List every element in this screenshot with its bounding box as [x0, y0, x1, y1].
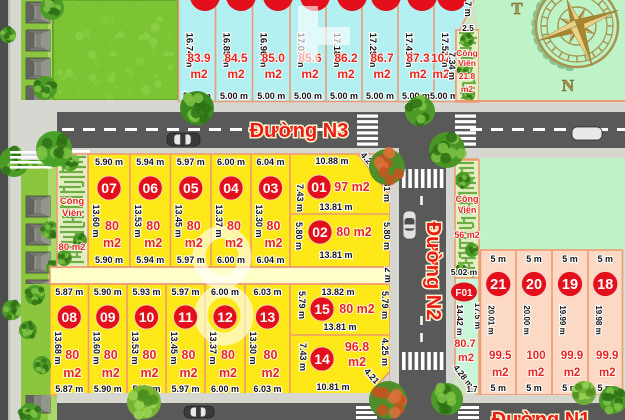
- svg-text:11: 11: [178, 309, 193, 325]
- svg-text:m2: m2: [564, 367, 581, 379]
- svg-text:08: 08: [61, 309, 77, 325]
- svg-text:86.2: 86.2: [334, 51, 358, 65]
- svg-text:m2: m2: [103, 236, 121, 250]
- svg-text:5.94 m: 5.94 m: [136, 157, 164, 167]
- svg-text:01: 01: [311, 179, 327, 195]
- svg-text:13.60 m: 13.60 m: [91, 204, 101, 237]
- svg-text:80: 80: [105, 219, 119, 233]
- svg-text:m2: m2: [179, 366, 197, 380]
- svg-text:5.00 m: 5.00 m: [330, 91, 358, 101]
- svg-text:10: 10: [139, 309, 155, 325]
- svg-text:12: 12: [217, 309, 233, 325]
- svg-text:m2: m2: [261, 366, 279, 380]
- svg-text:99.5: 99.5: [489, 350, 512, 362]
- svg-text:5.79 m: 5.79 m: [297, 291, 307, 319]
- svg-text:80 m2: 80 m2: [59, 242, 86, 253]
- svg-text:m2: m2: [599, 367, 616, 379]
- svg-text:13.81 m: 13.81 m: [319, 250, 352, 260]
- svg-text:m2: m2: [461, 84, 474, 94]
- svg-text:m2: m2: [102, 366, 120, 380]
- svg-text:13.30 m: 13.30 m: [248, 331, 258, 364]
- svg-text:Viên: Viên: [458, 58, 476, 68]
- svg-text:5.00 m: 5.00 m: [257, 91, 285, 101]
- svg-text:09: 09: [100, 309, 116, 325]
- svg-text:m2: m2: [492, 367, 509, 379]
- svg-text:N: N: [562, 76, 575, 95]
- svg-text:F01: F01: [455, 288, 473, 299]
- svg-text:87.3: 87.3: [406, 51, 430, 65]
- svg-text:80: 80: [146, 219, 160, 233]
- svg-text:10.81 m: 10.81 m: [316, 382, 349, 392]
- svg-text:19.99 m: 19.99 m: [558, 305, 567, 334]
- svg-text:13.68 m: 13.68 m: [53, 331, 63, 364]
- svg-text:2.5: 2.5: [462, 23, 474, 33]
- svg-text:80: 80: [104, 348, 118, 362]
- svg-text:80 m2: 80 m2: [339, 302, 374, 316]
- svg-text:97 m2: 97 m2: [334, 180, 369, 194]
- svg-text:6.00 m: 6.00 m: [211, 287, 239, 297]
- svg-text:m2: m2: [373, 67, 391, 81]
- svg-text:20.01 m: 20.01 m: [487, 305, 496, 334]
- svg-text:13.30 m: 13.30 m: [254, 204, 264, 237]
- svg-text:5.87 m: 5.87 m: [55, 287, 83, 297]
- svg-text:5 m: 5 m: [597, 254, 613, 264]
- svg-text:m2: m2: [348, 355, 366, 369]
- svg-text:96.8: 96.8: [345, 340, 369, 354]
- svg-text:03: 03: [263, 180, 279, 196]
- svg-text:m2: m2: [227, 67, 245, 81]
- svg-text:5.97 m: 5.97 m: [177, 157, 205, 167]
- svg-text:7.43 m: 7.43 m: [298, 343, 308, 371]
- svg-text:5.93 m: 5.93 m: [132, 287, 160, 297]
- svg-text:80: 80: [227, 219, 241, 233]
- svg-text:m2: m2: [265, 67, 283, 81]
- svg-text:5.90 m: 5.90 m: [94, 287, 122, 297]
- svg-text:84.5: 84.5: [224, 51, 248, 65]
- svg-text:Đường N2: Đường N2: [422, 222, 444, 321]
- svg-text:13.81 m: 13.81 m: [319, 202, 352, 212]
- svg-text:19.98 m: 19.98 m: [594, 305, 603, 334]
- svg-text:5.90 m: 5.90 m: [95, 157, 123, 167]
- svg-text:T: T: [511, 0, 523, 18]
- svg-text:5 m: 5 m: [562, 254, 578, 264]
- svg-text:5.00 m: 5.00 m: [366, 91, 394, 101]
- svg-text:Công: Công: [60, 196, 84, 207]
- svg-text:13.45 m: 13.45 m: [174, 204, 184, 237]
- svg-text:7.43 m: 7.43 m: [295, 184, 305, 212]
- svg-text:20: 20: [526, 277, 542, 293]
- svg-text:80: 80: [221, 348, 235, 362]
- svg-text:19: 19: [562, 277, 578, 293]
- svg-text:13.53 m: 13.53 m: [130, 331, 140, 364]
- svg-text:80: 80: [143, 348, 157, 362]
- svg-text:18: 18: [597, 277, 613, 293]
- svg-text:m2: m2: [140, 366, 158, 380]
- svg-text:7 m: 7 m: [463, 1, 473, 17]
- svg-text:5.90 m: 5.90 m: [94, 384, 122, 394]
- svg-text:80: 80: [182, 348, 196, 362]
- svg-text:21: 21: [490, 277, 506, 293]
- svg-text:04: 04: [223, 180, 239, 196]
- svg-text:21.8: 21.8: [459, 71, 476, 81]
- svg-text:6.04 m: 6.04 m: [256, 157, 284, 167]
- svg-text:m2: m2: [144, 236, 162, 250]
- svg-text:m2: m2: [264, 236, 282, 250]
- svg-text:80: 80: [267, 219, 281, 233]
- svg-text:5.02 m: 5.02 m: [451, 267, 478, 277]
- svg-text:20.00 m: 20.00 m: [522, 305, 531, 334]
- svg-text:5.00 m: 5.00 m: [294, 91, 322, 101]
- svg-text:m2: m2: [225, 236, 243, 250]
- svg-text:6.03 m: 6.03 m: [253, 287, 281, 297]
- svg-text:99.9: 99.9: [596, 350, 618, 362]
- svg-text:02: 02: [312, 224, 328, 240]
- svg-text:m2: m2: [409, 67, 427, 81]
- svg-text:07: 07: [101, 180, 117, 196]
- svg-text:6.04 m: 6.04 m: [256, 255, 284, 265]
- svg-text:5.80 m: 5.80 m: [294, 222, 304, 250]
- svg-text:m2: m2: [185, 236, 203, 250]
- svg-text:99.9: 99.9: [561, 350, 583, 362]
- svg-text:85.0: 85.0: [262, 51, 286, 65]
- svg-text:100: 100: [526, 350, 545, 362]
- svg-text:56 m2: 56 m2: [454, 230, 480, 240]
- svg-text:5.00 m: 5.00 m: [430, 91, 458, 101]
- svg-text:m2: m2: [337, 67, 355, 81]
- svg-text:5 m: 5 m: [490, 254, 506, 264]
- svg-text:6.03 m: 6.03 m: [253, 384, 281, 394]
- svg-text:5.00 m: 5.00 m: [220, 91, 248, 101]
- svg-text:Công: Công: [456, 194, 479, 204]
- svg-text:5.97 m: 5.97 m: [177, 255, 205, 265]
- svg-text:Viên: Viên: [62, 208, 82, 219]
- svg-text:06: 06: [142, 180, 158, 196]
- svg-text:05: 05: [183, 180, 199, 196]
- svg-text:5.97 m: 5.97 m: [171, 384, 199, 394]
- svg-text:Đường N1: Đường N1: [492, 409, 591, 420]
- svg-text:m2: m2: [458, 352, 474, 364]
- svg-text:15: 15: [314, 301, 330, 317]
- svg-text:m2: m2: [190, 67, 208, 81]
- svg-text:80: 80: [65, 348, 79, 362]
- svg-text:m2: m2: [63, 366, 81, 380]
- svg-text:14.42 m: 14.42 m: [455, 304, 465, 336]
- svg-text:Viên: Viên: [458, 205, 477, 215]
- svg-text:5.79 m: 5.79 m: [380, 291, 390, 319]
- svg-text:13.45 m: 13.45 m: [169, 331, 179, 364]
- svg-text:80.7: 80.7: [454, 338, 475, 350]
- svg-text:13.82 m: 13.82 m: [321, 287, 354, 297]
- svg-text:13.60 m: 13.60 m: [92, 331, 102, 364]
- svg-text:6.00 m: 6.00 m: [217, 157, 245, 167]
- svg-text:5 m: 5 m: [526, 254, 542, 264]
- svg-text:14: 14: [314, 351, 330, 367]
- svg-text:4.25 m: 4.25 m: [380, 338, 390, 366]
- svg-text:5.90 m: 5.90 m: [95, 255, 123, 265]
- svg-text:13: 13: [260, 309, 276, 325]
- svg-text:6.00 m: 6.00 m: [211, 384, 239, 394]
- svg-text:5 m: 5 m: [526, 383, 542, 393]
- svg-text:Đường N3: Đường N3: [250, 120, 349, 142]
- svg-text:5.97 m: 5.97 m: [171, 287, 199, 297]
- svg-text:m2: m2: [219, 366, 237, 380]
- svg-text:Công: Công: [456, 48, 478, 58]
- svg-text:83.9: 83.9: [187, 51, 211, 65]
- svg-text:13.53 m: 13.53 m: [133, 204, 143, 237]
- svg-text:6.00 m: 6.00 m: [217, 255, 245, 265]
- svg-text:80: 80: [264, 348, 278, 362]
- svg-text:1.7: 1.7: [466, 385, 478, 394]
- svg-text:5.94 m: 5.94 m: [136, 255, 164, 265]
- svg-text:m2: m2: [528, 367, 545, 379]
- svg-text:80 m2: 80 m2: [336, 225, 371, 239]
- svg-text:5.87 m: 5.87 m: [55, 384, 83, 394]
- svg-text:80: 80: [187, 219, 201, 233]
- svg-text:86.7: 86.7: [370, 51, 394, 65]
- svg-text:13.37 m: 13.37 m: [214, 204, 224, 237]
- svg-text:5 m: 5 m: [490, 383, 506, 393]
- svg-text:10.88 m: 10.88 m: [315, 156, 348, 166]
- svg-text:m2: m2: [301, 67, 319, 81]
- svg-text:13.81 m: 13.81 m: [323, 322, 356, 332]
- svg-text:13.37 m: 13.37 m: [208, 331, 218, 364]
